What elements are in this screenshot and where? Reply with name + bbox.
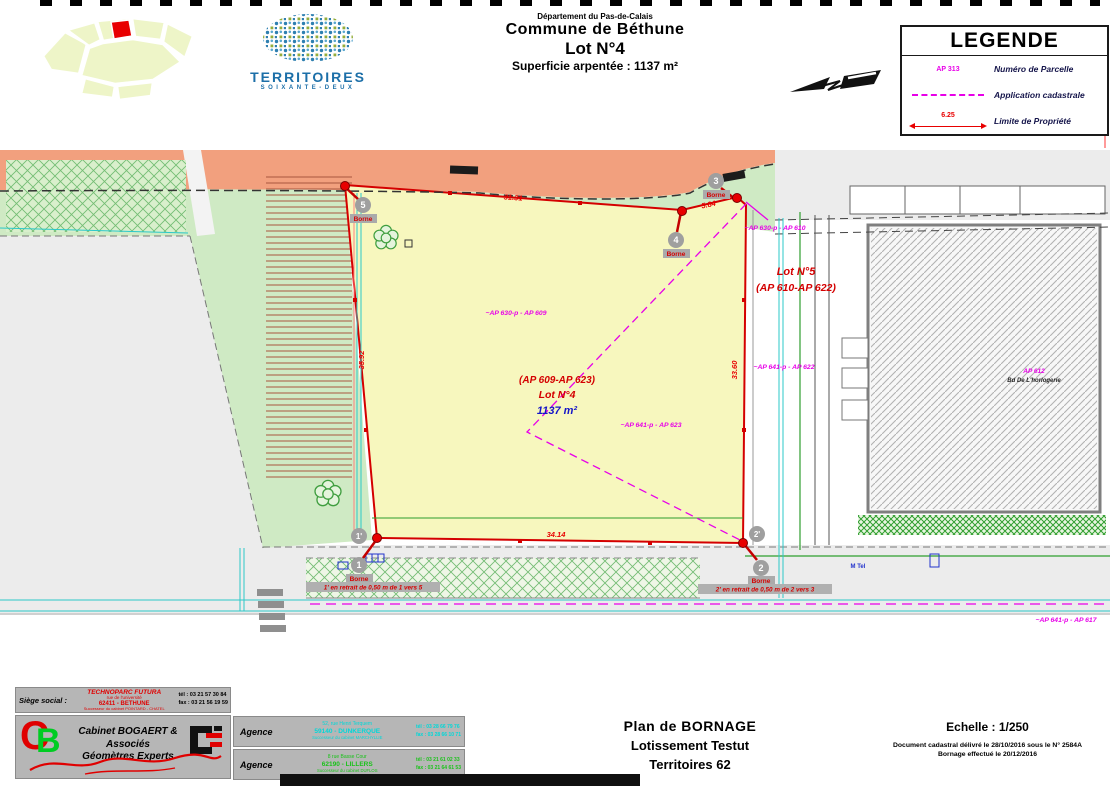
borne-number: 4 (673, 235, 678, 245)
borne-number: 3 (713, 176, 718, 186)
scale-block: Echelle : 1/250 Document cadastral déliv… (865, 720, 1110, 758)
siege-tel: tél : 03 21 57 30 84 (178, 692, 228, 700)
logo-title: TERRITOIRES (238, 69, 378, 85)
siege-label: Siège social : (16, 696, 70, 705)
location-sketch-map (35, 14, 205, 106)
logo-subtitle: SOIXANTE-DEUX (238, 85, 378, 91)
agence-tel: tél : 03 21 61 02 33 (416, 757, 461, 765)
borne-number: 1' (356, 532, 362, 541)
logo-dots-icon (238, 12, 378, 64)
agence-address: 8 rue Basse Cour 62190 - LILLERS Success… (279, 755, 416, 773)
hedge-strip (858, 515, 1106, 535)
north-arrow-icon (788, 58, 884, 104)
borne-caption: Borne (667, 251, 686, 258)
lot4-area (345, 185, 746, 543)
dim-bottom: 34.14 (547, 530, 567, 539)
building-block (842, 186, 1105, 512)
agence-tel: tél : 03 28 66 79 76 (416, 724, 461, 732)
scan-edge-dashes (40, 0, 1100, 6)
siege-fax: fax : 03 21 56 19 59 (178, 700, 228, 708)
building-name: Bd De L'horlogerie (1007, 378, 1061, 384)
signature (25, 750, 225, 778)
agence-phones: tél : 03 28 66 79 76 fax : 03 28 66 10 7… (416, 724, 464, 739)
agence-successor: Successeur du cabinet DUFLOS (279, 769, 416, 774)
lot5-name: Lot N°5 (777, 266, 817, 278)
hatched-area-topleft (6, 160, 186, 232)
agence-phones: tél : 03 21 61 02 33 fax : 03 21 64 61 5… (416, 757, 464, 772)
doc-title-1: Plan de BORNAGE (555, 718, 825, 734)
parcel-label: ~AP 630-p - AP 610 (744, 225, 805, 232)
legend-limit-line-icon: 6.25 (909, 114, 987, 128)
dim-top: 31.31 (503, 192, 522, 202)
doc-title-3: Territoires 62 (555, 757, 825, 772)
bornage-note: Bornage effectué le 20/12/2016 (865, 751, 1110, 758)
legend-parcel-symbol: AP 313 (936, 66, 959, 73)
highlighted-parcel (111, 20, 132, 39)
legend-label: Limite de Propriété (994, 116, 1071, 126)
borne-caption: Borne (707, 192, 726, 199)
legend-dashed-line-icon (912, 94, 984, 96)
plan-de-bornage-sheet: 5 4 3 1' 1 2' 2 Borne Borne Borne (0, 0, 1110, 786)
agence-row-1: Agence 52, rue Henri Terquem 59140 - DUN… (233, 716, 465, 747)
legend-label: Application cadastrale (994, 90, 1085, 100)
agence-label: Agence (234, 727, 279, 737)
scan-edge-bar (280, 774, 640, 786)
legend-title: LEGENDE (902, 27, 1107, 56)
agence-label: Agence (234, 760, 279, 770)
borne-number: 1 (356, 560, 361, 570)
agence-fax: fax : 03 28 66 10 71 (416, 732, 461, 740)
lot4-area: 1137 m² (537, 405, 577, 417)
cadastral-note: Document cadastral délivré le 28/10/2016… (865, 742, 1110, 749)
area-line: Superficie arpentée : 1137 m² (380, 59, 810, 73)
lot5-parcels: (AP 610-AP 622) (756, 282, 836, 294)
siege-address: TECHNOPARC FUTURA rue de l'université 62… (70, 690, 179, 711)
dim-left: 35.92 (357, 350, 366, 370)
borne-caption: Borne (354, 216, 373, 223)
borne-caption: Borne (752, 578, 771, 585)
legend-label: Numéro de Parcelle (994, 64, 1073, 74)
document-title: Plan de BORNAGE Lotissement Testut Terri… (555, 718, 825, 772)
scale-value: Echelle : 1/250 (865, 720, 1110, 734)
borne-note-2: 2' en retrait de 0,50 m de 2 vers 3 (715, 587, 815, 594)
cabinet-name: Cabinet BOGAERT & Associés (68, 726, 188, 751)
legend-row-cadastral: Application cadastrale (902, 82, 1107, 108)
parcel-label: ~AP 641-p - AP 622 (753, 364, 814, 371)
territoires-62-logo: TERRITOIRES SOIXANTE-DEUX (238, 12, 378, 91)
doc-title-2: Lotissement Testut (555, 738, 825, 753)
sheet-title: Département du Pas-de-Calais Commune de … (380, 12, 810, 73)
parcel-label: ~AP 641-p - AP 617 (1035, 617, 1097, 624)
parking-strip (266, 172, 352, 480)
legend-box: LEGENDE AP 313 Numéro de Parcelle Applic… (900, 25, 1109, 136)
siege-phones: tél : 03 21 57 30 84 fax : 03 21 56 19 5… (178, 692, 230, 707)
dim-right: 33.60 (730, 360, 739, 380)
lot4-parcels: (AP 609-AP 623) (519, 375, 596, 386)
legend-limit-value: 6.25 (909, 112, 987, 119)
commune-line: Commune de Béthune (380, 21, 810, 39)
borne-number: 2 (758, 563, 763, 573)
siege-successor: Successeur du cabinet POINTARD - CHATEL (70, 707, 179, 711)
borne-number: 5 (360, 200, 365, 210)
agence-address: 52, rue Henri Terquem 59140 - DUNKERQUE … (279, 722, 416, 740)
lot-line: Lot N°4 (380, 39, 810, 59)
borne-number: 2' (754, 530, 760, 539)
legend-row-limit: 6.25 Limite de Propriété (902, 108, 1107, 134)
department-line: Département du Pas-de-Calais (380, 12, 810, 21)
parcel-label: ~AP 641-p - AP 623 (620, 422, 681, 429)
legend-row-parcel: AP 313 Numéro de Parcelle (902, 56, 1107, 82)
building-parcel: AP 612 (1022, 368, 1045, 375)
borne-note-1: 1' en retrait de 0,50 m de 1 vers 5 (324, 585, 423, 592)
parcel-label: ~AP 630-p - AP 609 (485, 310, 546, 317)
lot4-name: Lot N°4 (539, 389, 576, 401)
borne-caption: Borne (350, 576, 369, 583)
agence-successor: Successeur du cabinet MARCHYLLIE (279, 736, 416, 741)
siege-social-block: Siège social : TECHNOPARC FUTURA rue de … (15, 687, 231, 713)
tel-label: M Tel (851, 564, 866, 570)
agence-fax: fax : 03 21 64 61 53 (416, 765, 461, 773)
